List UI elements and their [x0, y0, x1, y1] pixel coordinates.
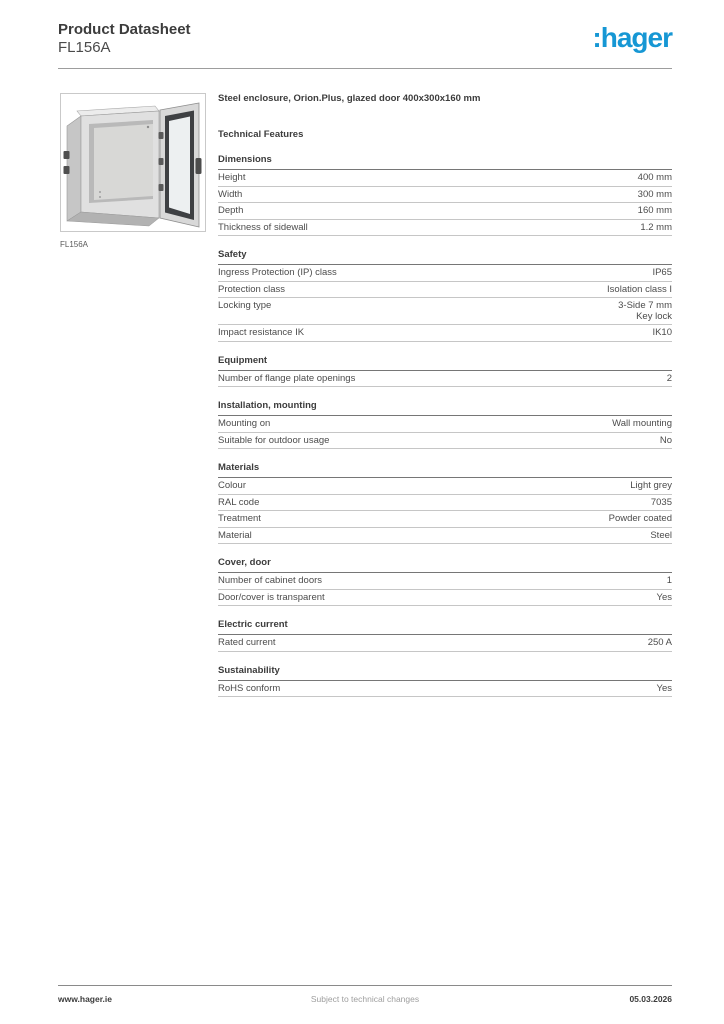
spec-sections: DimensionsHeight400 mmWidth300 mmDepth16…	[218, 154, 672, 697]
row-value: 160 mm	[638, 206, 672, 217]
row-label: Colour	[218, 481, 246, 492]
row-value: Isolation class I	[607, 285, 672, 296]
row-value: Yes	[657, 684, 673, 695]
image-caption: FL156A	[60, 240, 206, 249]
row-label: Thickness of sidewall	[218, 223, 308, 234]
product-description: Steel enclosure, Orion.Plus, glazed door…	[218, 93, 672, 105]
product-code: FL156A	[58, 39, 191, 57]
hager-logo: :hager	[592, 23, 672, 53]
row-value: IK10	[652, 328, 672, 339]
spec-section: Electric currentRated current250 A	[218, 619, 672, 652]
table-row: RAL code7035	[218, 495, 672, 512]
spec-section: DimensionsHeight400 mmWidth300 mmDepth16…	[218, 154, 672, 236]
table-row: Locking type3-Side 7 mm Key lock	[218, 298, 672, 325]
section-title: Cover, door	[218, 557, 672, 573]
spec-section: SustainabilityRoHS conformYes	[218, 665, 672, 698]
footer-date: 05.03.2026	[469, 994, 672, 1004]
table-row: Number of flange plate openings2	[218, 371, 672, 388]
row-label: Locking type	[218, 301, 271, 312]
footer-website: www.hager.ie	[58, 994, 261, 1004]
table-row: Door/cover is transparentYes	[218, 590, 672, 607]
row-label: Door/cover is transparent	[218, 593, 325, 604]
table-row: Mounting onWall mounting	[218, 416, 672, 433]
row-value: 2	[667, 374, 672, 385]
datasheet-page: Product Datasheet FL156A :hager	[0, 0, 724, 1024]
section-title: Installation, mounting	[218, 400, 672, 416]
product-image	[60, 93, 206, 232]
row-label: Protection class	[218, 285, 285, 296]
spec-section: Installation, mountingMounting onWall mo…	[218, 400, 672, 449]
row-label: Treatment	[218, 514, 261, 525]
row-value: 3-Side 7 mm Key lock	[618, 301, 672, 322]
footer-note: Subject to technical changes	[261, 994, 470, 1004]
enclosure-illustration	[63, 96, 203, 229]
row-label: Number of cabinet doors	[218, 576, 322, 587]
table-row: RoHS conformYes	[218, 681, 672, 698]
row-value: 7035	[651, 498, 672, 509]
row-value: No	[660, 436, 672, 447]
section-title: Electric current	[218, 619, 672, 635]
row-label: RAL code	[218, 498, 259, 509]
row-label: Material	[218, 531, 252, 542]
section-title: Safety	[218, 249, 672, 265]
row-value: 1	[667, 576, 672, 587]
header-divider	[58, 68, 672, 69]
row-value: Light grey	[630, 481, 672, 492]
section-title: Equipment	[218, 355, 672, 371]
table-row: ColourLight grey	[218, 478, 672, 495]
spec-section: SafetyIngress Protection (IP) classIP65P…	[218, 249, 672, 342]
row-label: RoHS conform	[218, 684, 280, 695]
row-value: 400 mm	[638, 173, 672, 184]
header-text-block: Product Datasheet FL156A	[58, 21, 191, 57]
row-label: Depth	[218, 206, 243, 217]
table-row: Rated current250 A	[218, 635, 672, 652]
spec-section: Cover, doorNumber of cabinet doors1Door/…	[218, 557, 672, 606]
page-header: Product Datasheet FL156A :hager	[58, 21, 672, 57]
footer-divider	[58, 985, 672, 986]
table-row: Thickness of sidewall1.2 mm	[218, 220, 672, 237]
product-image-column: FL156A	[60, 93, 206, 249]
row-value: 1.2 mm	[640, 223, 672, 234]
table-row: Ingress Protection (IP) classIP65	[218, 265, 672, 282]
row-label: Rated current	[218, 638, 276, 649]
row-value: IP65	[652, 268, 672, 279]
table-row: Protection classIsolation class I	[218, 282, 672, 299]
section-title: Materials	[218, 462, 672, 478]
spec-section: MaterialsColourLight greyRAL code7035Tre…	[218, 462, 672, 544]
page-title: Product Datasheet	[58, 21, 191, 39]
row-label: Ingress Protection (IP) class	[218, 268, 337, 279]
section-title: Dimensions	[218, 154, 672, 170]
row-label: Height	[218, 173, 245, 184]
row-value: Yes	[657, 593, 673, 604]
row-label: Mounting on	[218, 419, 270, 430]
row-label: Suitable for outdoor usage	[218, 436, 329, 447]
table-row: Number of cabinet doors1	[218, 573, 672, 590]
row-value: 300 mm	[638, 190, 672, 201]
section-title: Sustainability	[218, 665, 672, 681]
table-row: Height400 mm	[218, 170, 672, 187]
row-value: 250 A	[648, 638, 672, 649]
table-row: Depth160 mm	[218, 203, 672, 220]
row-value: Powder coated	[609, 514, 672, 525]
spec-section: EquipmentNumber of flange plate openings…	[218, 355, 672, 388]
row-value: Steel	[650, 531, 672, 542]
page-footer: www.hager.ie Subject to technical change…	[58, 994, 672, 1004]
table-row: MaterialSteel	[218, 528, 672, 545]
table-row: TreatmentPowder coated	[218, 511, 672, 528]
table-row: Impact resistance IKIK10	[218, 325, 672, 342]
spec-column: Steel enclosure, Orion.Plus, glazed door…	[218, 93, 672, 697]
table-row: Width300 mm	[218, 187, 672, 204]
row-label: Impact resistance IK	[218, 328, 304, 339]
row-label: Number of flange plate openings	[218, 374, 355, 385]
row-label: Width	[218, 190, 242, 201]
row-value: Wall mounting	[612, 419, 672, 430]
technical-features-heading: Technical Features	[218, 129, 672, 141]
table-row: Suitable for outdoor usageNo	[218, 433, 672, 450]
